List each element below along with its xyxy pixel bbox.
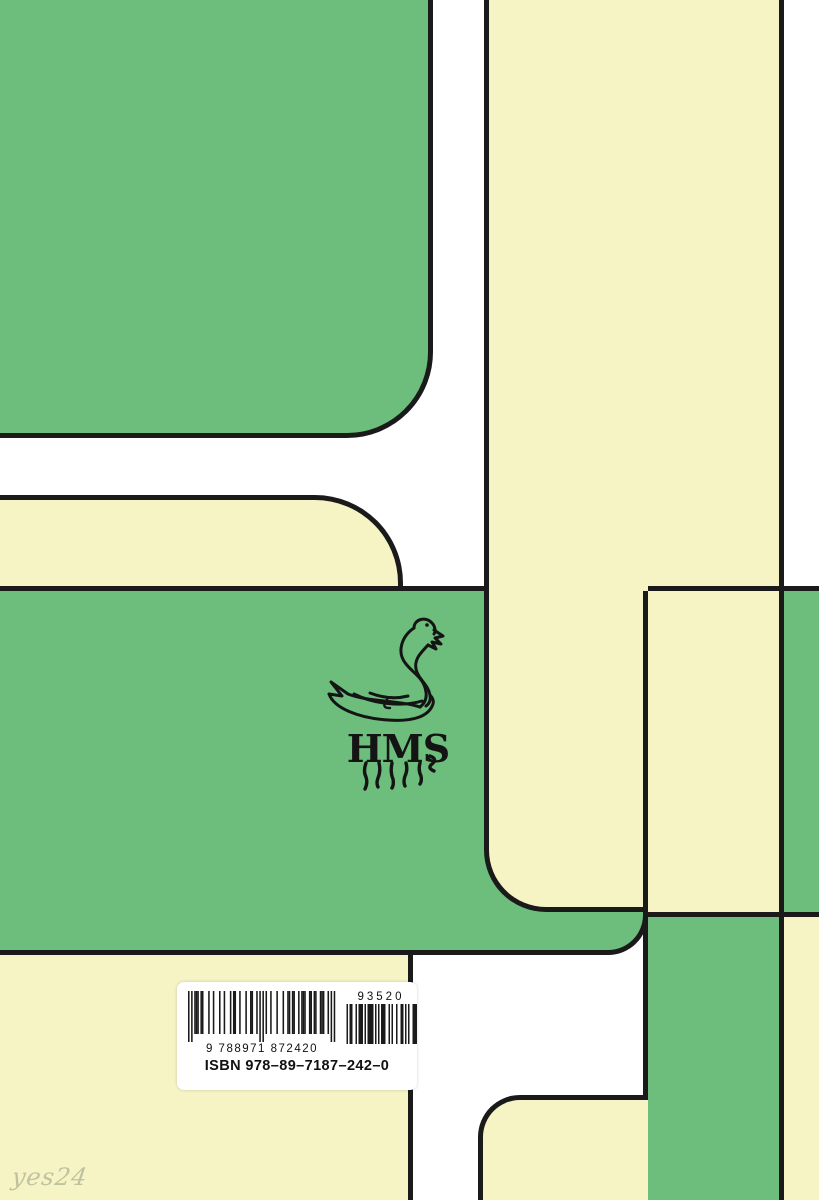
addon-digits: 93520 — [358, 991, 405, 1003]
publisher-logo: HMS — [326, 606, 460, 798]
isbn-text: ISBN 978–89–7187–242–0 — [188, 1058, 406, 1074]
swan-eye — [425, 623, 429, 627]
swan-icon: HMS — [326, 606, 460, 798]
panel-right-cream — [643, 591, 784, 912]
addon-barcode — [345, 1004, 417, 1044]
ean13-barcode — [188, 991, 336, 1042]
ean13-block: 9 788971 872420 — [188, 991, 336, 1055]
panel-center-cream-column — [484, 0, 648, 912]
addon-block: 93520 — [345, 991, 417, 1044]
panel-right-green-lower — [643, 912, 784, 1200]
panel-bottom-right-cream — [779, 912, 819, 1200]
panel-bottom-center-cream — [478, 1095, 648, 1200]
yes24-watermark: yes24 — [10, 1163, 90, 1191]
panel-top-left-green — [0, 0, 433, 438]
panel-right-green-upper — [779, 586, 819, 917]
panel-upper-right-cream — [645, 0, 784, 591]
book-back-cover: HMS 9 788971 872420 93520 ISBN 978 — [0, 0, 819, 1200]
ean13-digits: 9 788971 872420 — [206, 1043, 318, 1055]
barcode-label: 9 788971 872420 93520 ISBN 978–89–7187–2… — [177, 982, 417, 1090]
